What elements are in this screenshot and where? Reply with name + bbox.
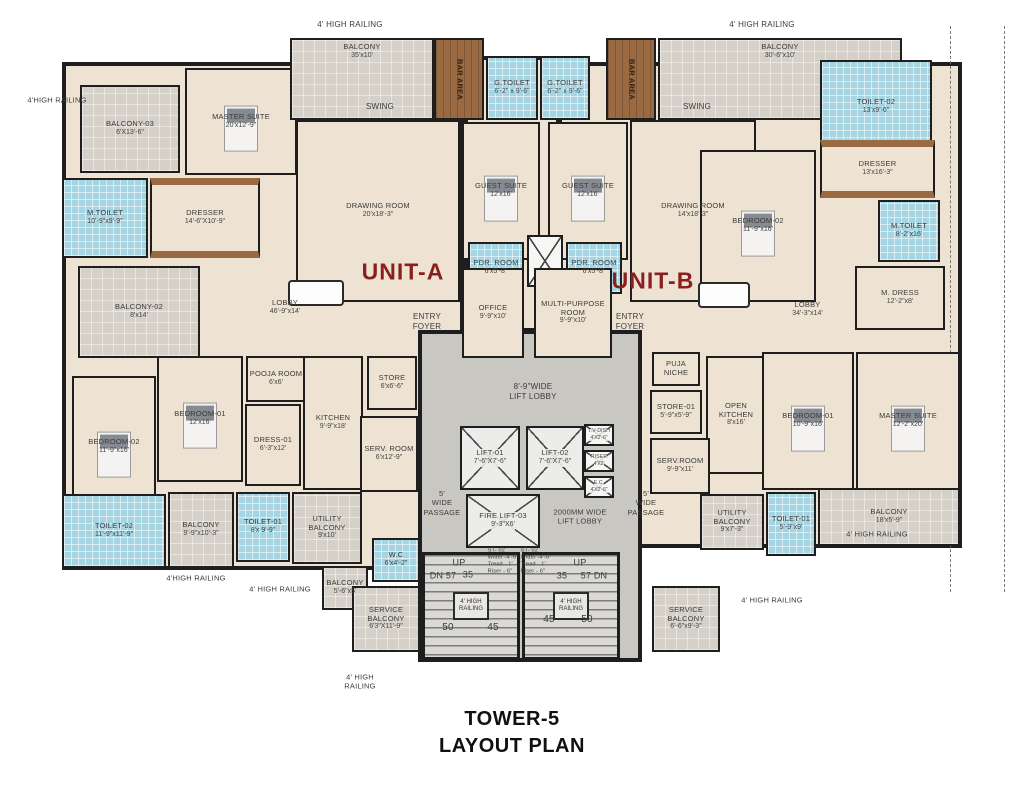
annotation-railing-top-left: 4' HIGH RAILING [317,20,382,30]
annotation-up-right: UP [574,557,587,568]
room-label: TOILET-02 [95,522,133,531]
room-toilet-02-a: TOILET-0211'-9"x11'-9" [62,494,166,568]
room-puja-niche: PUJA NICHE [652,352,700,386]
stair-railing-label: 4' HIGH RAILING [453,592,489,620]
room-label: TOILET-01 [244,518,282,527]
room-dims: 6'x5'-8" [583,268,606,276]
room-dims: 34'-3"x14' [792,310,822,318]
annotation-swing-a: SWING [366,102,394,112]
annotation-stair-spec-right: ST- 02 Width -4'-6" Tread - 1' Riser - 6… [521,547,552,575]
annotation-railing-right-1: 4' HIGH RAILING [846,529,908,538]
room-m-dress: M. DRESS12'-2"x8' [855,266,945,330]
room-label: BALCONY [870,508,907,517]
floor-plan: UNIT-A UNIT-B BALCONY-036'X13'-6"MASTER … [0,0,1024,804]
room-dims: 13'x16'-3" [862,169,892,177]
room-store-01: STORE-015'-9"x5'-9" [650,390,702,434]
room-store-a: STORE6'x6'-6" [367,356,417,410]
room-label: LOBBY [794,301,820,310]
room-label: M.TOILET [87,209,123,218]
room-bedroom-01-b: BEDROOM-0110'-9"x16' [762,352,854,490]
room-office: OFFICE9'-9"x10' [462,268,524,358]
room-label: BEDROOM-01 [174,410,226,419]
room-label: SERVICE BALCONY [654,606,718,623]
room-dims: 14'-6"X10'-9" [185,218,225,226]
room-label: OFFICE [479,304,508,313]
room-dims: 9'-9"x10' [480,313,507,321]
room-dims: 30'-6"x10' [765,52,795,60]
room-bedroom-01-a: BEDROOM-0112'x16' [157,356,243,482]
room-toilet-01-b: TOILET-015'-9"x9' [766,492,816,556]
room-shaft-riser: RISER4'X2' [584,450,614,472]
room-label: STORE [379,374,406,383]
room-label: UTILITY BALCONY [294,515,360,532]
annotation-n45-right: 45 [543,614,555,627]
annotation-passage-right: 5' WIDE PASSAGE [628,489,665,517]
room-master-suite-a: MASTER SUITE20'x12'-9" [185,68,297,175]
room-dims: 20'x18'-3" [363,211,393,219]
room-dims: 6'-6"x9'-3" [670,623,701,631]
room-label: G.TOILET [547,79,583,88]
annotation-n35-left: 35 [463,569,473,580]
room-dims: 6'x5'-8" [485,268,508,276]
room-bedroom-02-b: BEDROOM-0211'-9"x16' [700,150,816,302]
room-balcony-02: BALCONY-028'x14' [78,266,200,358]
room-dims: 9'x7'-3" [721,526,744,534]
room-dims: 7'-6"X7'-6" [474,458,507,466]
room-label: SERVICE BALCONY [354,606,418,623]
room-dims: 5'-9"x9' [780,524,803,532]
room-dims: 9'-9"x11' [667,466,693,474]
annotation-dn-left: DN 57 [430,570,457,581]
room-toilet-01-a: TOILET-018'x 9'-9" [236,492,290,562]
room-dims: 6'-3"x12' [260,445,287,453]
room-dims: 6'X13'-6" [116,129,144,137]
annotation-entry-foyer-b: ENTRY FOYER [616,312,645,332]
room-label: DRESS-01 [254,436,292,445]
annotation-lift-lobby-2000: 2000MM WIDE LIFT LOBBY [553,508,606,527]
room-dims: 14'x18'-3" [678,211,708,219]
room-bar-area-b: BAR AREA [606,38,656,120]
room-label: PUJA NICHE [664,360,688,377]
floor-plan-canvas: UNIT-A UNIT-B BALCONY-036'X13'-6"MASTER … [0,0,1024,804]
annotation-railing-left: 4'HIGH RAILING [27,95,86,104]
boundary-dash-line [1004,26,1005,592]
room-label: LOBBY [272,299,298,308]
room-dims: 6'-2" x 9'-6" [547,88,582,96]
room-label: GUEST SUITE [562,182,614,191]
room-dims: 5'-6"x5' [334,588,357,596]
room-dims: 12'x16' [189,419,211,427]
room-label: BEDROOM-01 [782,412,834,421]
room-label: LIFT-02 [541,449,568,458]
room-dims: 10'-9"x9'-9" [87,218,122,226]
room-m-toilet-b: M.TOILET8'-2"x16' [878,200,940,262]
room-label: MULTI-PURPOSE ROOM [536,300,610,317]
room-kitchen: KITCHEN9'-9"x18' [303,356,363,490]
room-label: OPEN KITCHEN [708,402,764,419]
room-label: SERV. ROOM [364,445,413,454]
room-label: BALCONY [343,43,380,52]
room-label: FIRE LIFT-03 [479,512,526,521]
room-label: W.C [389,551,404,560]
room-wc: W.C6'x4'-2" [372,538,420,582]
room-dims: 9'x10' [318,532,336,540]
room-label: KITCHEN [316,414,350,423]
room-open-kitchen: OPEN KITCHEN8'x16' [706,356,766,474]
plan-title: TOWER-5 LAYOUT PLAN [0,706,1024,760]
room-dims: 8'-2"x16' [896,231,923,239]
annotation-n35-right: 35 [557,570,567,581]
room-lobby-b: LOBBY34'-3"x14' [760,290,855,330]
room-label: GUEST SUITE [475,182,527,191]
room-dims: 35'x10' [351,52,373,60]
room-label: M. DRESS [881,289,919,298]
title-line-2: LAYOUT PLAN [0,733,1024,760]
room-label: UTILITY BALCONY [702,509,762,526]
room-m-toilet-a: M.TOILET10'-9"x9'-9" [62,178,148,258]
room-label: LIFT-01 [476,449,503,458]
room-serv-room-b: SERV.ROOM9'-9"x11' [650,438,710,494]
room-balcony-top-a: BALCONY35'x10' [290,38,434,120]
room-dims: 13'x9'-6" [863,107,890,115]
room-multi-purpose-room: MULTI-PURPOSE ROOM9'-9"x10' [534,268,612,358]
room-dims: 12'x16' [490,191,512,199]
room-utility-balcony-a: UTILITY BALCONY9'x10' [292,492,362,564]
room-dims: 6'x6' [269,379,283,387]
room-label: BAR AREA [455,59,464,100]
room-lift-02: LIFT-027'-6"X7'-6" [526,426,584,490]
room-label: SERV.ROOM [657,457,704,466]
room-dress-01: DRESS-016'-3"x12' [245,404,301,486]
annotation-up-left: UP [453,557,466,568]
room-dims: 12'-2"x8' [887,298,914,306]
room-dims: 11'-9"x16' [99,447,129,455]
room-dims: 12'x16' [577,191,599,199]
room-dims: 9'-9"x10' [560,317,587,325]
room-dims: 4'X2'-6" [590,487,607,493]
room-label: BALCONY [326,579,363,588]
room-serv-room-a: SERV. ROOM6'x12'-9" [360,416,418,492]
room-bar-area-a: BAR AREA [434,38,484,120]
room-label: DRAWING ROOM [346,202,410,211]
room-utility-balcony-b: UTILITY BALCONY9'x7'-3" [700,494,764,550]
room-label: STORE-01 [657,403,695,412]
room-label: BALCONY-02 [115,303,163,312]
unit-a-label: UNIT-A [362,259,445,286]
room-g-toilet-b: G.TOILET6'-2" x 9'-6" [540,56,590,120]
title-line-1: TOWER-5 [0,706,1024,733]
room-label: PDR. ROOM [473,259,518,268]
room-dims: 9'-9"x10'-3" [183,530,218,538]
room-dims: 46'-9"x14' [270,308,300,316]
room-master-suite-b: MASTER SUITE12'-2"x20' [856,352,960,490]
room-label: BALCONY [761,43,798,52]
dining-table-b [698,282,750,308]
room-label: PDR. ROOM [571,259,616,268]
room-balcony-03: BALCONY-036'X13'-6" [80,85,180,173]
room-dims: 6'-2" x 9'-6" [494,88,529,96]
room-label: M.TOILET [891,222,927,231]
room-dresser-b: DRESSER13'x16'-3" [820,140,935,198]
room-dims: 8'x14' [130,312,148,320]
annotation-passage-left: 5' WIDE PASSAGE [424,489,461,517]
room-g-toilet-a: G.TOILET6'-2" x 9'-6" [486,56,538,120]
room-shaft-ec: E.C.4'X2'-6" [584,476,614,498]
room-shaft-tv-dish: T.V-DISH4'X2'-6" [584,424,614,446]
annotation-railing-top-right: 4' HIGH RAILING [729,20,794,30]
room-label: TOILET-01 [772,515,810,524]
room-label: BAR AREA [627,59,636,100]
room-pooja-room: POOJA ROOM6'x6' [246,356,306,402]
room-service-balcony-b: SERVICE BALCONY6'-6"x9'-3" [652,586,720,652]
room-dims: 4'X2'-6" [590,435,607,441]
room-label: DRESSER [186,209,224,218]
annotation-n45-left: 45 [487,622,499,635]
room-dims: 20'x12'-9" [226,122,256,130]
room-lift-01: LIFT-017'-6"X7'-6" [460,426,520,490]
room-dims: 5'-9"x5'-9" [660,412,691,420]
annotation-railing-bottom-1: 4'HIGH RAILING [166,573,225,582]
room-label: MASTER SUITE [212,113,270,122]
room-label: TOILET-02 [857,98,895,107]
room-dims: 6'3"X11'-9" [369,623,403,631]
room-dims: 6'x4'-2" [385,560,408,568]
unit-b-label: UNIT-B [612,268,695,295]
room-dims: 11'-9"x16' [743,226,773,234]
annotation-n50-right: 50 [581,614,593,627]
annotation-stair-spec-left: ST- 02 Width -4'-6" Tread - 1' Riser - 6… [488,547,519,575]
room-dims: 6'x6'-6" [381,383,404,391]
annotation-railing-right-2: 4' HIGH RAILING [741,595,803,604]
annotation-railing-bottom-center: 4' HIGH RAILING [344,673,375,692]
room-dims: 10'-9"x16' [793,421,823,429]
room-label: BEDROOM-02 [732,217,784,226]
room-label: MASTER SUITE [879,412,937,421]
room-dims: 18'x5'-9" [876,517,903,525]
room-dresser-a: DRESSER14'-6"X10'-9" [150,178,260,258]
annotation-railing-bottom-2: 4' HIGH RAILING [249,584,311,593]
annotation-lift-lobby-width: 8'-9"WIDE LIFT LOBBY [509,382,556,402]
room-label: DRAWING ROOM [661,202,725,211]
room-dims: 4'X2' [594,461,605,467]
room-balcony-bl: BALCONY9'-9"x10'-3" [168,492,234,568]
annotation-swing-b: SWING [683,102,711,112]
room-dims: 9'-3"X6' [491,521,515,529]
annotation-n50-left: 50 [442,622,454,635]
room-fire-lift-03: FIRE LIFT-039'-3"X6' [466,494,540,548]
room-label: DRESSER [859,160,897,169]
room-dims: 6'x12'-9" [376,454,403,462]
annotation-dn-right: 57 DN [581,570,608,581]
room-dims: 9'-9"x18' [320,423,347,431]
room-service-balcony-a: SERVICE BALCONY6'3"X11'-9" [352,586,420,652]
room-label: G.TOILET [494,79,530,88]
room-dims: 8'x 9'-9" [251,527,276,535]
room-dims: 11'-9"x11'-9" [95,531,133,539]
room-dims: 12'-2"x20' [893,421,923,429]
room-label: BALCONY [182,521,219,530]
room-dims: 7'-6"X7'-6" [539,458,572,466]
room-label: BEDROOM-02 [88,438,140,447]
room-label: BALCONY-03 [106,120,154,129]
room-dims: 8'x16' [727,419,745,427]
annotation-entry-foyer-a: ENTRY FOYER [413,312,442,332]
room-label: POOJA ROOM [250,370,302,379]
